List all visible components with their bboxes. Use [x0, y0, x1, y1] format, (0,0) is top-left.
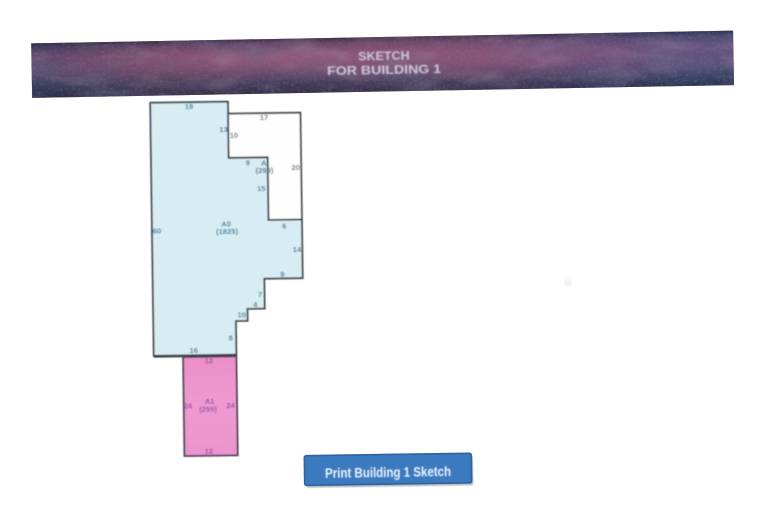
svg-text:10: 10 — [237, 310, 246, 319]
svg-text:60: 60 — [153, 226, 162, 235]
svg-text:20: 20 — [291, 163, 300, 172]
svg-text:7: 7 — [258, 290, 262, 299]
svg-text:12: 12 — [205, 356, 214, 365]
svg-text:18: 18 — [185, 102, 194, 111]
svg-text:24: 24 — [226, 401, 235, 410]
svg-text:17: 17 — [260, 113, 269, 122]
svg-text:6: 6 — [282, 222, 286, 231]
svg-text:12: 12 — [205, 447, 214, 456]
svg-text:Print Building 1 Sketch: Print Building 1 Sketch — [325, 464, 451, 481]
svg-text:9: 9 — [246, 158, 250, 167]
svg-text:9: 9 — [280, 270, 284, 279]
svg-text:16: 16 — [189, 346, 198, 355]
svg-text:24: 24 — [183, 402, 192, 411]
svg-text:8: 8 — [229, 334, 233, 343]
svg-text:10: 10 — [230, 131, 239, 140]
svg-text:SKETCH: SKETCH — [358, 49, 410, 64]
svg-text:FOR BUILDING 1: FOR BUILDING 1 — [327, 62, 442, 78]
svg-text:(295): (295) — [199, 404, 217, 413]
svg-text:(290): (290) — [256, 166, 274, 175]
svg-text:14: 14 — [293, 245, 302, 254]
svg-text:(1825): (1825) — [216, 227, 239, 236]
svg-text:15: 15 — [257, 184, 266, 193]
svg-text:13: 13 — [219, 125, 228, 134]
